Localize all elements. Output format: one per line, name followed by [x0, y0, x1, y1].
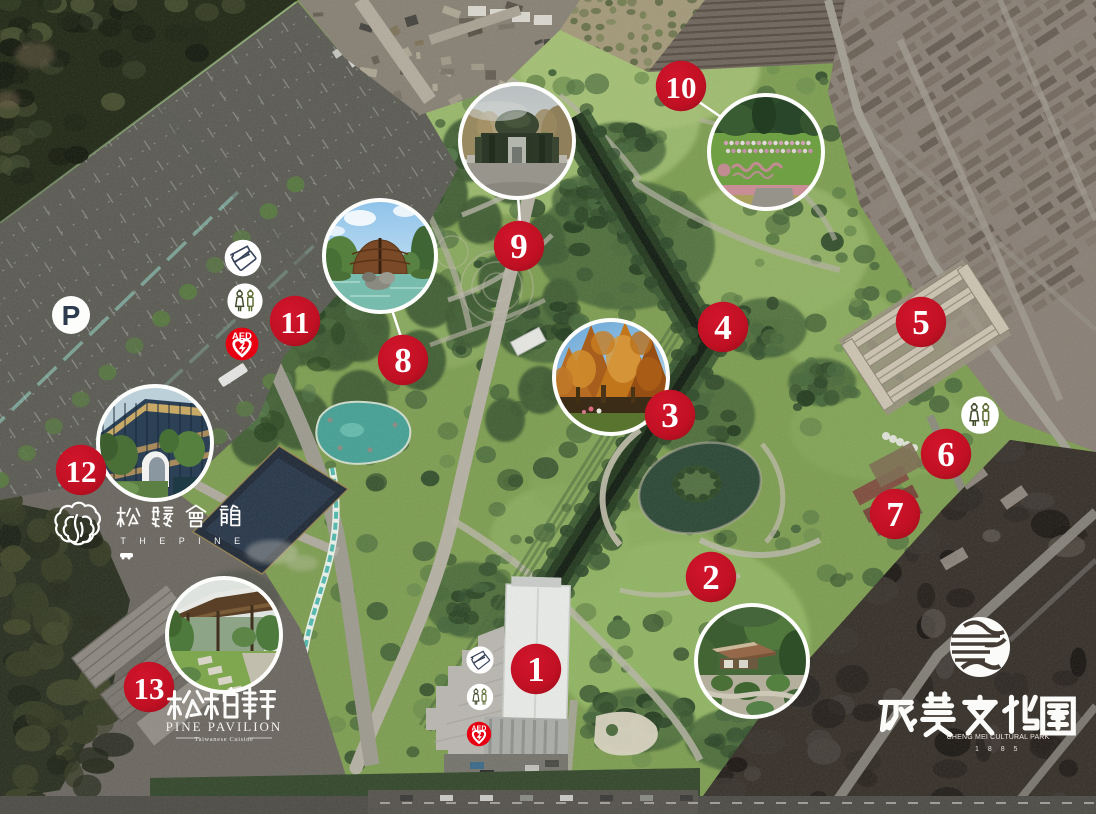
svg-text:7: 7: [886, 495, 904, 534]
svg-text:9: 9: [510, 227, 528, 266]
svg-text:5: 5: [912, 303, 930, 342]
svg-text:4: 4: [714, 308, 732, 347]
svg-text:CHENG MEI CULTURAL PARK: CHENG MEI CULTURAL PARK: [947, 734, 1050, 741]
svg-text:13: 13: [134, 671, 165, 706]
svg-text:8: 8: [394, 341, 412, 380]
svg-text:3: 3: [661, 396, 679, 435]
svg-text:T H E P I N E: T H E P I N E: [120, 536, 245, 546]
svg-text:12: 12: [66, 454, 97, 489]
svg-text:1 8 8 5: 1 8 8 5: [975, 746, 1021, 753]
svg-text:Taiwanese Cuisine: Taiwanese Cuisine: [194, 736, 253, 743]
svg-text:11: 11: [280, 305, 309, 340]
svg-text:1: 1: [527, 650, 545, 689]
svg-text:2: 2: [702, 558, 720, 597]
svg-text:6: 6: [937, 435, 955, 474]
svg-text:10: 10: [666, 70, 697, 105]
svg-text:PINE PAVILION: PINE PAVILION: [166, 719, 283, 734]
svg-text:P: P: [62, 300, 81, 331]
